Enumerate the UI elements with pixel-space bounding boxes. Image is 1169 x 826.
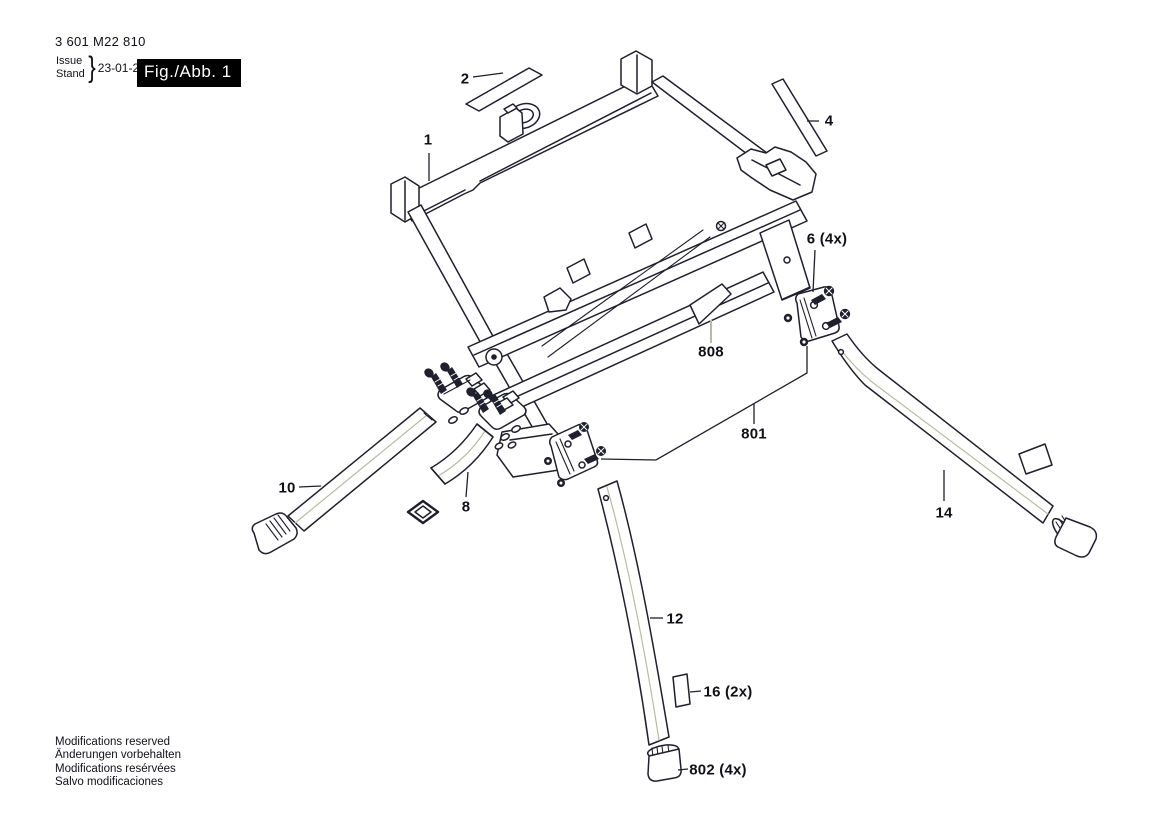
callout-4: 4 bbox=[825, 113, 834, 130]
parts-diagram-page: 3 601 M22 810 Issue Stand } 23-01-20 Fig… bbox=[0, 0, 1169, 826]
part-8-elbow-drawing bbox=[408, 424, 493, 523]
callout-16: 16 (2x) bbox=[704, 684, 753, 701]
notice-line-es: Salvo modificaciones bbox=[55, 776, 181, 789]
callout-808: 808 bbox=[698, 344, 724, 361]
part-12-leg-drawing bbox=[598, 481, 681, 781]
notice-line-de: Änderungen vorbehalten bbox=[55, 749, 181, 762]
modifications-notice: Modifications reserved Änderungen vorbeh… bbox=[55, 736, 181, 790]
exploded-parts-drawing bbox=[0, 0, 1169, 826]
callout-1: 1 bbox=[424, 132, 433, 149]
notice-line-en: Modifications reserved bbox=[55, 736, 181, 749]
callout-12: 12 bbox=[666, 611, 683, 628]
part-16-strip-drawing bbox=[673, 674, 690, 707]
callout-802: 802 (4x) bbox=[689, 762, 746, 779]
callout-6: 6 (4x) bbox=[807, 231, 847, 248]
part-14-leg-drawing bbox=[832, 334, 1096, 557]
part-4-strip-drawing bbox=[772, 79, 827, 156]
callout-8: 8 bbox=[462, 499, 471, 516]
callout-10: 10 bbox=[278, 480, 295, 497]
part-1-frame-drawing bbox=[391, 51, 816, 477]
right-small-sticker-drawing bbox=[1019, 444, 1052, 474]
callout-801: 801 bbox=[741, 426, 767, 443]
leader-lines bbox=[299, 73, 944, 770]
callout-14: 14 bbox=[935, 505, 952, 522]
callout-2: 2 bbox=[461, 71, 470, 88]
notice-line-fr: Modifications resérvées bbox=[55, 763, 181, 776]
